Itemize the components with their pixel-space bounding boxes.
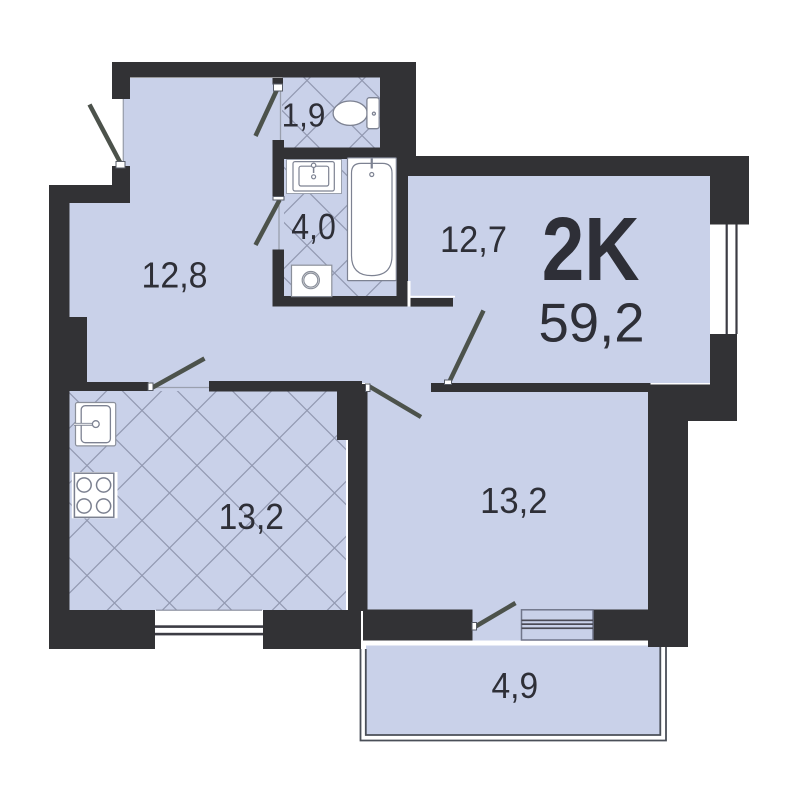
svg-text:1,9: 1,9 [282, 96, 326, 133]
svg-text:12,7: 12,7 [440, 219, 507, 260]
svg-text:13,2: 13,2 [480, 480, 547, 521]
svg-text:13,2: 13,2 [219, 497, 284, 538]
svg-text:12,8: 12,8 [141, 255, 207, 295]
svg-text:4,9: 4,9 [491, 666, 538, 707]
svg-text:2K: 2K [542, 198, 640, 299]
svg-text:59,2: 59,2 [538, 293, 644, 354]
svg-text:4,0: 4,0 [291, 207, 336, 247]
